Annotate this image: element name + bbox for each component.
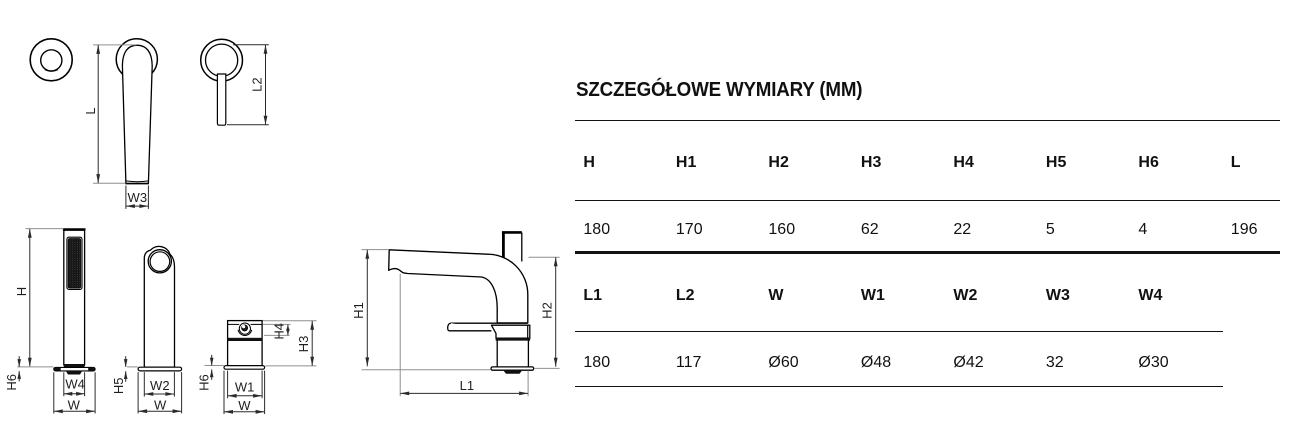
svg-text:W4: W4 [65, 376, 85, 391]
svg-text:W: W [68, 397, 81, 412]
svg-text:H2: H2 [539, 302, 554, 319]
svg-text:H6: H6 [4, 374, 19, 391]
svg-text:W3: W3 [128, 190, 148, 205]
svg-text:W: W [238, 398, 251, 413]
svg-text:H: H [14, 287, 29, 296]
svg-text:H6: H6 [196, 374, 211, 391]
svg-text:W2: W2 [150, 378, 170, 393]
svg-text:L2: L2 [249, 77, 264, 91]
svg-text:H3: H3 [296, 336, 311, 353]
svg-text:H4: H4 [272, 323, 287, 340]
svg-text:H5: H5 [111, 377, 126, 394]
svg-text:L1: L1 [460, 378, 474, 393]
svg-text:L: L [83, 107, 98, 114]
svg-text:W1: W1 [235, 379, 255, 394]
svg-text:W: W [154, 397, 167, 412]
svg-text:H1: H1 [351, 302, 366, 319]
